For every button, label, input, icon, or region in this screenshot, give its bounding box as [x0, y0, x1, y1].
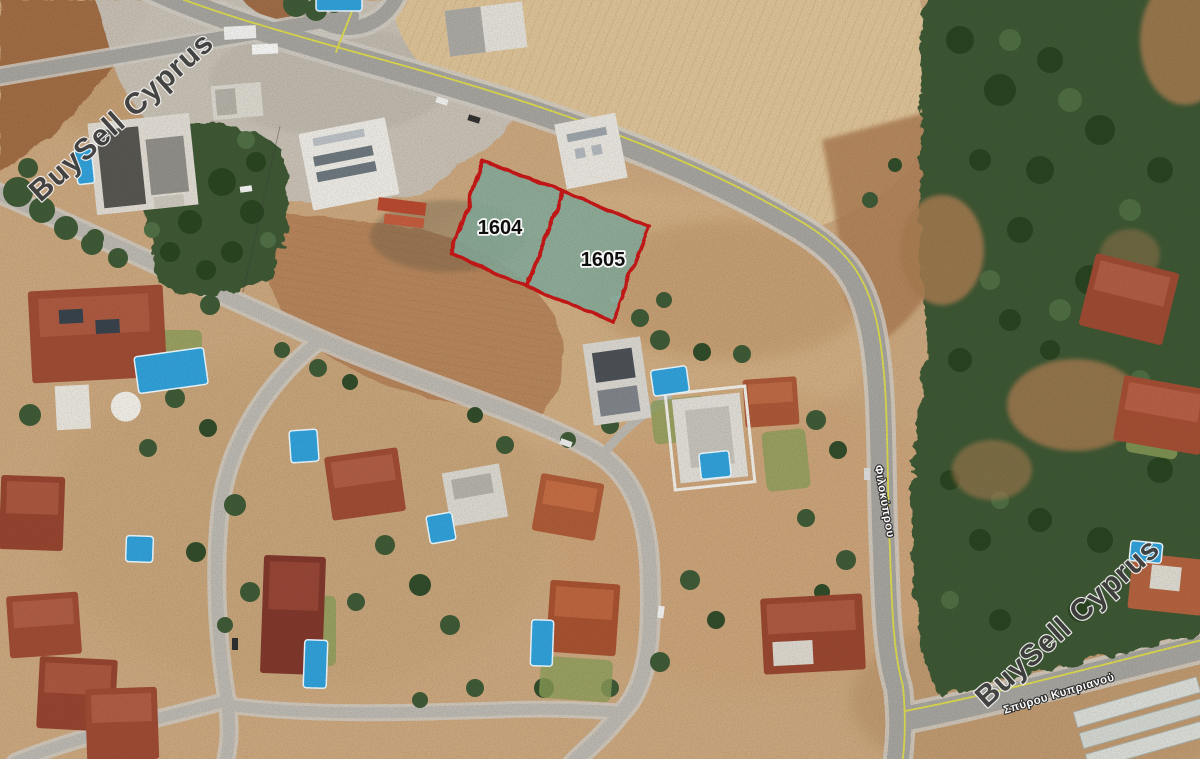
- satellite-image: 1604 1605 Φιλοκύπρου Σπύρου Κυπριανού Bu…: [0, 0, 1200, 759]
- building-warehouse-2: [554, 113, 627, 190]
- pool: [316, 0, 362, 11]
- truck-2: [252, 43, 278, 54]
- plot-1604-label: 1604: [478, 217, 523, 239]
- pool: [699, 451, 732, 480]
- building-red-villa-2: [0, 475, 65, 551]
- building-modern-1: [583, 336, 652, 425]
- pool: [426, 512, 456, 544]
- building-red-villa-10: [760, 593, 866, 674]
- pool: [289, 429, 319, 463]
- building-warehouse: [298, 117, 399, 210]
- building-red-villa-14: [85, 687, 159, 759]
- building-orange-villa-8: [546, 580, 621, 657]
- truck: [224, 25, 257, 40]
- pool: [126, 536, 154, 563]
- building-top-edge: [444, 1, 527, 56]
- satellite-map-canvas: 1604 1605 Φιλοκύπρου Σπύρου Κυπριανού Bu…: [0, 0, 1200, 759]
- building-red-villa-6: [324, 447, 406, 521]
- building-red-villa-3: [6, 592, 82, 659]
- pool: [530, 620, 554, 667]
- pool: [303, 640, 328, 689]
- building-orange-villa-7: [531, 473, 604, 541]
- building-red-house-9: [742, 376, 799, 428]
- pool: [650, 366, 689, 397]
- building-small-depot: [211, 82, 264, 120]
- plot-1605-label: 1605: [581, 249, 626, 271]
